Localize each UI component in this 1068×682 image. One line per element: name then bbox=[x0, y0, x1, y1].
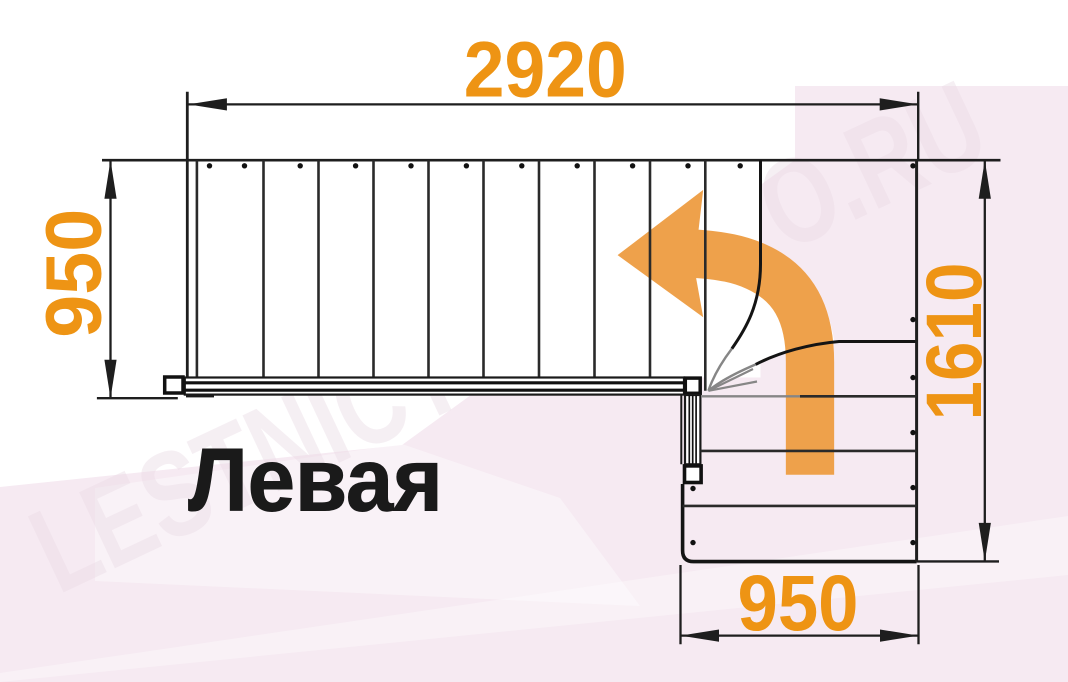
svg-text:Левая: Левая bbox=[188, 430, 443, 530]
svg-text:2920: 2920 bbox=[464, 25, 627, 113]
svg-text:950: 950 bbox=[738, 559, 859, 647]
svg-text:950: 950 bbox=[29, 209, 117, 338]
svg-text:1610: 1610 bbox=[910, 263, 998, 421]
